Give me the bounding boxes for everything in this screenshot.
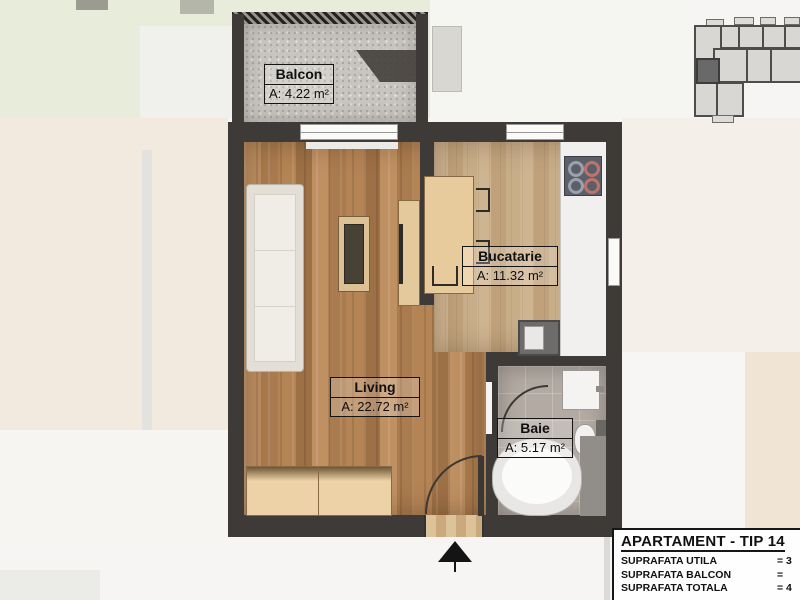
room-area: A: 11.32 m² bbox=[463, 267, 557, 285]
north-arrow-icon bbox=[438, 541, 472, 562]
coffee-table-top bbox=[344, 224, 364, 284]
room-area: A: 4.22 m² bbox=[265, 85, 333, 103]
key-plan-mid-row bbox=[713, 48, 800, 83]
key-plan-highlighted-unit bbox=[696, 58, 720, 84]
burner-icon bbox=[568, 161, 584, 177]
wardrobe-divider bbox=[318, 466, 319, 516]
floor-plan-page: Balcon A: 4.22 m² Bucatarie A: 11.32 m² … bbox=[0, 0, 800, 600]
bg-shadow bbox=[0, 570, 100, 600]
room-label-bucatarie: Bucatarie A: 11.32 m² bbox=[462, 246, 558, 286]
key-plan-divider bbox=[716, 82, 718, 117]
wardrobe bbox=[246, 466, 392, 516]
key-plan-balcony-tab bbox=[760, 17, 776, 25]
wall-right bbox=[606, 122, 622, 537]
bg-neighbour-floor bbox=[622, 118, 800, 358]
bathroom-sink bbox=[562, 370, 600, 410]
wall-bath-left-upper bbox=[486, 366, 498, 382]
cooktop bbox=[564, 156, 602, 196]
bg-planter bbox=[432, 26, 462, 92]
key-plan-balcony-tab bbox=[784, 17, 800, 25]
wall-left bbox=[228, 122, 244, 537]
room-name: Living bbox=[331, 378, 419, 398]
surface-label: SUPRAFATA UTILA bbox=[621, 555, 717, 567]
room-label-baie: Baie A: 5.17 m² bbox=[497, 418, 573, 458]
chair bbox=[476, 188, 490, 212]
side-window bbox=[608, 238, 620, 286]
key-plan-lower-unit bbox=[694, 82, 744, 117]
bg-faded-plan bbox=[430, 0, 690, 120]
balcony-window bbox=[300, 124, 398, 140]
entrance-door-threshold bbox=[424, 515, 484, 537]
room-name: Balcon bbox=[265, 65, 333, 85]
key-plan-balcony-tab bbox=[734, 17, 754, 25]
kitchen-window bbox=[506, 124, 564, 140]
bg-shadow bbox=[76, 0, 108, 10]
burner-icon bbox=[584, 178, 600, 194]
chair bbox=[432, 266, 458, 286]
balcony-railing-hatch bbox=[232, 12, 428, 24]
burner-icon bbox=[584, 161, 600, 177]
room-name: Baie bbox=[498, 419, 572, 439]
surface-label: SUPRAFATA BALCON bbox=[621, 569, 731, 581]
bg-neighbour-wall-line bbox=[142, 150, 152, 430]
bg-neighbour-floor bbox=[745, 352, 800, 530]
balcony-wall-left bbox=[232, 14, 244, 122]
sofa-cushions bbox=[254, 194, 296, 362]
bathtub-deck bbox=[580, 436, 606, 516]
key-plan-divider bbox=[746, 48, 748, 83]
surface-label: SUPRAFATA TOTALA bbox=[621, 582, 728, 594]
apartment-type-title: APARTAMENT - TIP 14 bbox=[621, 533, 785, 552]
surface-row-totala: SUPRAFATA TOTALA = 4 bbox=[621, 582, 800, 596]
bg-neighbour-floor bbox=[0, 118, 228, 448]
surface-row-balcon: SUPRAFATA BALCON = bbox=[621, 569, 800, 583]
room-area: A: 5.17 m² bbox=[498, 439, 572, 457]
bg-neighbour-wall bbox=[622, 352, 745, 530]
room-label-living: Living A: 22.72 m² bbox=[330, 377, 420, 417]
room-label-balcon: Balcon A: 4.22 m² bbox=[264, 64, 334, 104]
surface-value: = 3 bbox=[777, 555, 792, 569]
bg-shadow bbox=[180, 0, 214, 14]
apartment-info-panel: APARTAMENT - TIP 14 SUPRAFATA UTILA = 3 … bbox=[612, 528, 800, 600]
key-plan-divider bbox=[770, 48, 772, 83]
entrance-door-swing bbox=[424, 454, 484, 516]
surface-value: = 4 bbox=[777, 582, 792, 596]
kitchen-sink-basin bbox=[524, 326, 544, 350]
key-plan-divider bbox=[738, 25, 740, 49]
key-plan-divider bbox=[762, 25, 764, 49]
burner-icon bbox=[568, 178, 584, 194]
key-plan-divider bbox=[784, 25, 786, 49]
bg-wall-line bbox=[604, 537, 610, 600]
surface-value: = bbox=[777, 569, 783, 583]
window-sill bbox=[306, 142, 398, 149]
site-key-plan bbox=[686, 16, 800, 128]
balcony-wall-right bbox=[416, 14, 428, 122]
tv-screen bbox=[399, 224, 403, 284]
bg-faded-plan bbox=[140, 26, 235, 118]
bathroom-tap bbox=[596, 386, 604, 392]
bg-neighbour-wall bbox=[0, 430, 228, 540]
surface-row-utila: SUPRAFATA UTILA = 3 bbox=[621, 555, 800, 569]
key-plan-balcony-tab bbox=[712, 115, 734, 123]
room-name: Bucatarie bbox=[463, 247, 557, 267]
room-area: A: 22.72 m² bbox=[331, 398, 419, 416]
